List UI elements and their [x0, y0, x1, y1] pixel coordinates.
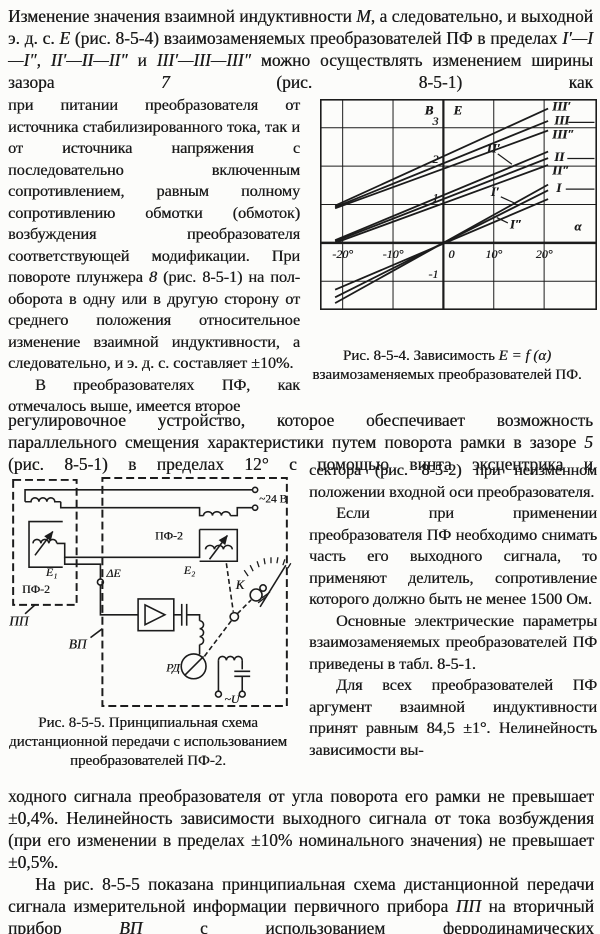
svg-text:-10°: -10°	[383, 247, 404, 261]
svg-text:II: II	[553, 149, 565, 164]
svg-text:II′: II′	[486, 141, 501, 156]
core	[29, 522, 63, 568]
vp-box	[102, 478, 286, 706]
paragraph: Основные электрические параметры взаимоз…	[309, 610, 597, 675]
coil	[25, 498, 61, 502]
svg-text:α: α	[574, 219, 582, 234]
label-e1: Е₁	[45, 565, 57, 579]
svg-text:III″: III″	[551, 127, 574, 142]
label-rd: РД	[165, 660, 181, 674]
svg-text:10°: 10°	[485, 247, 502, 261]
book-page: Изменение значения взаимной индуктивност…	[0, 0, 600, 934]
paragraph: сектора (рис. 8-5-2) при неизменном поло…	[309, 459, 597, 502]
paragraph: при питании преобразователя от источника…	[8, 94, 300, 374]
svg-text:III′: III′	[551, 99, 571, 114]
label-e2: Е₂	[183, 563, 195, 577]
svg-text:-1: -1	[428, 267, 438, 281]
paragraph: Для всех преобразователей ПФ аргумент вз…	[309, 674, 597, 760]
right-column: сектора (рис. 8-5-2) при неизменном поло…	[309, 459, 597, 760]
left-column: при питании преобразователя от источника…	[8, 94, 300, 417]
figure-8-5-4: 321-1-20°-10°010°20°ВEαIII′IIIIII″II′III…	[301, 99, 599, 385]
label-delta-e: ΔЕ	[105, 566, 121, 580]
svg-text:2: 2	[432, 152, 438, 166]
svg-text:E: E	[452, 102, 462, 117]
label-pp: ПП	[8, 614, 30, 629]
coil	[204, 512, 231, 516]
label-k: К	[235, 578, 246, 592]
label-u: ~U	[224, 692, 240, 706]
paragraph: ходного сигнала преобразователя от угла …	[8, 785, 594, 873]
terminal	[253, 487, 258, 492]
svg-text:1: 1	[432, 191, 438, 205]
svg-text:II″: II″	[551, 163, 569, 178]
terminal	[253, 505, 258, 510]
label-vp: ВП	[69, 637, 88, 652]
figure-8-5-5: ПП ВП ПФ-2 ПФ-2 Е₁ Е₂ ΔЕ К РД ~24 В ~U Р…	[4, 472, 300, 771]
svg-text:III: III	[553, 113, 570, 128]
figure-8-5-4-caption: Рис. 8-5-4. Зависимость Е = f (α) взаимо…	[301, 347, 593, 385]
schematic-remote-transmission: ПП ВП ПФ-2 ПФ-2 Е₁ Е₂ ΔЕ К РД ~24 В ~U	[4, 472, 296, 710]
svg-text:I′: I′	[490, 184, 500, 199]
terminal	[215, 691, 221, 697]
amplifier	[138, 599, 174, 631]
coil	[218, 656, 242, 660]
paragraph: Если при применении преобразователя ПФ н…	[309, 502, 597, 610]
svg-text:20°: 20°	[536, 247, 553, 261]
paragraph: На рис. 8-5-5 показана принципиальная сх…	[8, 873, 594, 934]
bottom-block: ходного сигнала преобразователя от угла …	[8, 785, 594, 934]
pointer	[260, 565, 286, 607]
figure-8-5-5-caption: Рис. 8-5-5. Принципиальная схема дистанц…	[4, 714, 292, 771]
coil	[200, 621, 204, 645]
paragraph-intro: Изменение значения взаимной индуктивност…	[8, 5, 593, 93]
svg-text:0: 0	[448, 247, 454, 261]
svg-text:I″: I″	[509, 216, 522, 231]
label-pf2-left: ПФ-2	[22, 582, 50, 596]
label-24v: ~24 В	[259, 494, 287, 506]
svg-text:В: В	[424, 102, 434, 117]
svg-text:I: I	[555, 180, 562, 195]
pivot	[230, 613, 238, 621]
chart-e-vs-alpha: 321-1-20°-10°010°20°ВEαIII′IIIIII″II′III…	[320, 99, 597, 310]
label-pf2-right: ПФ-2	[155, 528, 183, 542]
frame-arrow	[35, 532, 53, 556]
svg-text:-20°: -20°	[332, 247, 353, 261]
terminal	[239, 691, 245, 697]
